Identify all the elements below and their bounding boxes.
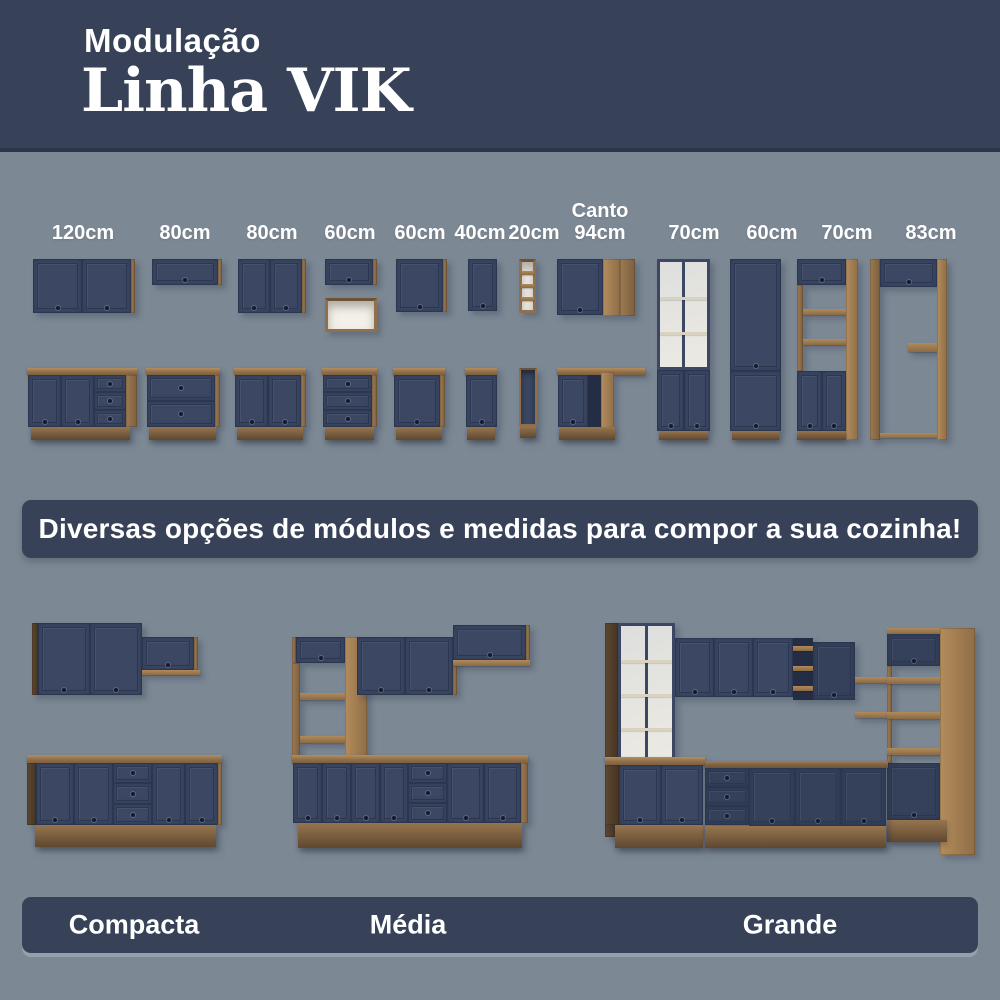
plinth <box>467 427 495 440</box>
wood-panel <box>373 259 377 285</box>
cabinet-door <box>797 259 846 285</box>
drawer <box>323 392 372 410</box>
module-wall-120cm <box>33 259 135 313</box>
header-banner: Modulação Linha VIK <box>0 0 1000 152</box>
cabinet-door <box>841 768 886 826</box>
drawer <box>323 375 372 392</box>
cabinet-door <box>684 370 710 431</box>
plinth <box>237 427 303 440</box>
module-tall-glass-70cm <box>657 259 710 440</box>
module-wall-flip-60cm <box>325 259 377 285</box>
module-size-label: 60cm <box>324 222 375 244</box>
cabinet-door <box>797 371 822 431</box>
drawer <box>147 375 215 401</box>
open-niche <box>325 298 377 332</box>
cabinet-door <box>822 371 846 431</box>
compacta-flip-cabinet <box>142 637 202 676</box>
drawer <box>705 806 749 825</box>
tagline-text: Diversas opções de módulos e medidas par… <box>39 513 962 545</box>
wood-shelf <box>803 309 846 315</box>
module-size-label: 70cm <box>668 222 719 244</box>
drawer <box>323 410 372 427</box>
cabinet-door <box>351 763 380 823</box>
wood-panel <box>292 663 300 757</box>
drawer <box>408 783 447 803</box>
cabinet-door <box>447 763 484 823</box>
cabinet-door <box>730 371 781 431</box>
wood-shelf <box>521 271 534 275</box>
glass-shelf-line <box>621 694 672 697</box>
cabinet-door <box>880 259 937 287</box>
wood-panel <box>797 285 803 371</box>
drawer <box>113 763 152 783</box>
layout-labels-band: Compacta Média Grande <box>22 897 978 953</box>
module-base-80cm <box>234 368 306 440</box>
wood-shelf <box>793 686 813 691</box>
cabinet-door <box>322 763 351 823</box>
wood-shelf <box>793 666 813 671</box>
cabinet-door <box>753 638 793 697</box>
module-wall-corner-94cm <box>557 259 635 316</box>
module-base-40cm <box>465 368 497 440</box>
module-base-60cm <box>393 368 445 440</box>
cabinet-door <box>887 634 940 666</box>
cabinet-door <box>558 375 588 427</box>
wood-panel <box>372 375 377 427</box>
wood-shelf <box>521 297 534 301</box>
wood-shelf <box>453 660 530 666</box>
wood-shelf <box>887 712 940 719</box>
module-wall-40cm <box>468 259 497 311</box>
countertop <box>322 368 377 375</box>
wood-panel <box>937 259 947 440</box>
drawer <box>94 392 126 410</box>
module-size-label: 60cm <box>394 222 445 244</box>
grande-corner-shelves <box>793 638 813 700</box>
wood-panel <box>605 765 619 825</box>
countertop <box>234 368 306 375</box>
cabinet-door <box>325 259 373 285</box>
promo-graphic: Modulação Linha VIK 120cm 80cm 80cm 60cm… <box>0 0 1000 1000</box>
module-size-label: 20cm <box>508 222 559 244</box>
module-base-drawers-60cm <box>322 368 377 440</box>
cabinet-door <box>90 623 142 695</box>
grande-base-right <box>705 761 888 848</box>
cabinet-door <box>380 763 408 823</box>
wood-panel <box>443 259 447 312</box>
wood-panel <box>526 625 530 660</box>
countertop <box>705 761 888 768</box>
wood-panel <box>601 372 614 429</box>
module-base-drawers-80cm <box>146 368 220 440</box>
grande-float-shelves <box>855 670 887 720</box>
wood-panel <box>846 259 858 440</box>
wood-panel <box>870 259 880 440</box>
wood-shelf <box>803 339 846 345</box>
media-base-run <box>292 755 528 848</box>
wood-panel <box>215 375 220 427</box>
wood-panel <box>126 375 137 427</box>
cabinet-door <box>795 768 841 826</box>
cabinet-door <box>293 763 322 823</box>
drawer <box>705 787 749 806</box>
drawer <box>94 410 126 427</box>
module-size-label: 70cm <box>821 222 872 244</box>
module-fridge-frame-83cm <box>870 259 947 440</box>
module-base-corner-94cm <box>557 368 645 440</box>
module-size-label: 60cm <box>746 222 797 244</box>
cabinet-door <box>142 637 194 670</box>
cabinet-door <box>82 259 131 313</box>
module-base-open-20cm <box>519 368 537 438</box>
cabinet-door <box>152 763 185 825</box>
plinth <box>797 431 846 440</box>
wood-shelf <box>521 284 534 288</box>
wood-panel <box>440 375 445 427</box>
countertop <box>605 757 705 765</box>
wood-shelf <box>300 693 345 700</box>
cabinet-door <box>394 375 440 427</box>
drawer <box>408 763 447 783</box>
wood-panel <box>27 763 36 825</box>
cabinet-door <box>238 259 270 313</box>
cabinet-door <box>405 637 453 695</box>
glass-door-section <box>657 259 710 370</box>
cabinet-door <box>235 375 268 427</box>
cabinet-door <box>61 375 94 427</box>
plinth <box>396 427 442 440</box>
wood-panel <box>301 375 306 427</box>
glass-shelf-line <box>660 332 707 335</box>
cabinet-door <box>813 642 855 700</box>
module-size-label: 40cm <box>454 222 505 244</box>
plinth <box>705 826 886 848</box>
tagline-banner: Diversas opções de módulos e medidas par… <box>22 500 978 558</box>
cabinet-door <box>28 375 61 427</box>
cabinet-door <box>38 623 90 695</box>
plinth <box>520 426 536 438</box>
cabinet-door <box>887 763 940 820</box>
grande-fridge-tower <box>887 628 975 855</box>
glass-shelf-line <box>621 728 672 731</box>
drawer <box>147 401 215 427</box>
cabinet-door <box>268 375 301 427</box>
layout-label-grande: Grande <box>743 910 838 941</box>
plinth <box>659 431 708 440</box>
wood-shelf <box>793 646 813 651</box>
module-size-label: 120cm <box>52 222 114 244</box>
countertop <box>27 368 137 375</box>
wood-shelf <box>880 433 937 438</box>
module-base-120cm <box>27 368 137 440</box>
grande-wall-run <box>675 638 793 697</box>
layout-label-compacta: Compacta <box>69 910 200 941</box>
cabinet-door <box>466 375 497 427</box>
wood-panel <box>218 259 222 285</box>
glass-door-section <box>618 623 675 765</box>
wood-panel <box>521 763 528 823</box>
module-tall-shelf-70cm <box>797 259 858 440</box>
wood-shelf <box>855 677 887 683</box>
countertop <box>292 755 528 763</box>
drawer <box>94 375 126 392</box>
wood-shelf <box>887 677 940 684</box>
drawer <box>113 804 152 825</box>
cabinet-door <box>730 259 781 371</box>
module-wall-60cm <box>396 259 447 312</box>
cabinet-door <box>453 625 526 660</box>
cabinet-door <box>749 768 795 826</box>
plinth <box>31 427 130 440</box>
header-eyebrow: Modulação <box>84 22 261 60</box>
plinth <box>559 427 615 440</box>
wood-shelf <box>142 670 200 675</box>
cabinet-door <box>675 638 714 697</box>
page-title: Linha VIK <box>81 56 411 126</box>
cabinet-door <box>657 370 684 431</box>
module-tall-60cm <box>730 259 781 440</box>
wood-panel <box>131 259 135 313</box>
drawer <box>113 783 152 804</box>
grande-base-left <box>605 757 705 848</box>
wood-panel <box>302 259 306 313</box>
wood-panel <box>218 763 222 825</box>
module-wall-niche-60cm <box>325 298 377 332</box>
module-size-label: 80cm <box>246 222 297 244</box>
wood-panel <box>620 259 635 316</box>
media-tower <box>292 637 367 757</box>
cabinet-door <box>33 259 82 313</box>
countertop <box>27 755 222 763</box>
layout-label-media: Média <box>370 910 447 941</box>
plinth <box>298 823 522 848</box>
countertop <box>146 368 220 375</box>
media-flip-cabinet <box>453 625 530 666</box>
cabinet-door <box>152 259 218 285</box>
module-size-label: 80cm <box>159 222 210 244</box>
plinth <box>732 431 779 440</box>
cabinet-door <box>396 259 443 312</box>
cabinet-door <box>74 763 113 825</box>
countertop <box>465 368 497 375</box>
drawer <box>705 768 749 787</box>
cabinet-door <box>714 638 753 697</box>
wood-panel <box>603 259 620 316</box>
cabinet-door <box>484 763 521 823</box>
plinth <box>887 820 947 842</box>
cabinet-door <box>619 765 661 825</box>
cabinet-door <box>296 637 345 663</box>
module-wall-flip-80cm <box>152 259 222 285</box>
wood-shelf <box>887 748 940 755</box>
wood-shelf <box>908 343 937 352</box>
cabinet-door <box>661 765 703 825</box>
drawer <box>408 803 447 823</box>
glass-mullion <box>682 262 685 367</box>
cabinet-door <box>185 763 218 825</box>
wood-panel <box>194 637 198 670</box>
open-niche <box>519 368 537 426</box>
module-wall-80cm <box>238 259 306 313</box>
grande-wall-door <box>813 642 855 700</box>
media-wall-cabinet <box>357 637 457 695</box>
plinth <box>35 825 216 847</box>
cabinet-door <box>36 763 74 825</box>
plinth <box>325 427 374 440</box>
cabinet-door <box>557 259 603 315</box>
wood-shelf <box>300 736 345 743</box>
compacta-base-run <box>27 755 222 847</box>
module-size-label: 83cm <box>905 222 956 244</box>
module-size-label: Canto 94cm <box>572 200 629 244</box>
glass-shelf-line <box>621 660 672 663</box>
glass-shelf-line <box>660 297 707 300</box>
compacta-wall-cabinet <box>32 623 142 695</box>
cabinet-door <box>468 259 497 311</box>
countertop <box>393 368 445 375</box>
cabinet-door <box>270 259 302 313</box>
module-wall-shelf-20cm <box>519 259 536 313</box>
wood-shelf <box>855 712 887 718</box>
plinth <box>149 427 216 440</box>
plinth <box>615 825 703 848</box>
cabinet-door <box>357 637 405 695</box>
